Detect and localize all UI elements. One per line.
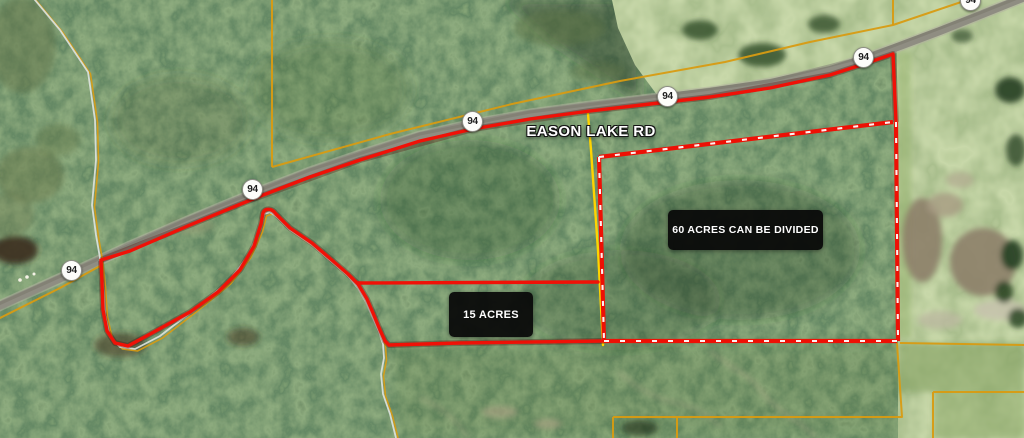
parcel-label-15-acres-text: 15 ACRES [463,309,519,321]
route-94-shield-label: 94 [662,91,673,102]
route-94-shield-label: 94 [858,52,869,63]
boundary-15-acre-top [358,282,598,283]
route-94-shield: 94 [853,47,874,68]
route-94-shield-label: 94 [66,265,77,276]
satellite-imagery-layer [0,0,1024,438]
route-94-shield-label: 94 [467,116,478,127]
route-94-shield: 94 [61,260,82,281]
route-94-shield-label: 94 [965,0,976,6]
aerial-property-map: 94 94 94 94 94 94 EASON LAKE RD 60 ACRES… [0,0,1024,438]
plantation-area [390,341,898,438]
route-94-shield-label: 94 [247,184,258,195]
route-94-shield: 94 [657,86,678,107]
route-94-shield: 94 [462,111,483,132]
parcel-label-15-acres: 15 ACRES [449,292,533,337]
parcel-label-60-acres: 60 ACRES CAN BE DIVIDED [668,210,823,250]
parcel-label-60-acres-text: 60 ACRES CAN BE DIVIDED [672,224,819,236]
route-94-shield: 94 [242,179,263,200]
road-name-label: EASON LAKE RD [516,123,666,140]
